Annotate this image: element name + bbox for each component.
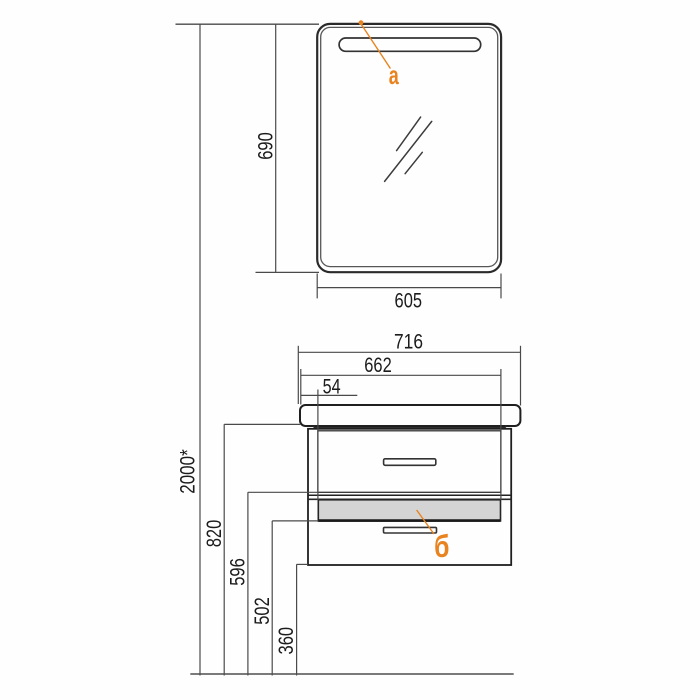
svg-text:54: 54 [323, 375, 341, 398]
svg-text:б: б [434, 528, 449, 564]
svg-text:596: 596 [227, 558, 250, 586]
svg-text:502: 502 [251, 597, 274, 625]
svg-text:820: 820 [203, 520, 226, 548]
svg-text:662: 662 [364, 354, 392, 377]
svg-text:690: 690 [254, 132, 277, 160]
svg-text:716: 716 [394, 330, 423, 353]
svg-text:605: 605 [395, 290, 423, 313]
svg-text:2000*: 2000* [176, 449, 199, 494]
svg-text:360: 360 [275, 627, 298, 655]
svg-text:a: a [389, 60, 399, 90]
